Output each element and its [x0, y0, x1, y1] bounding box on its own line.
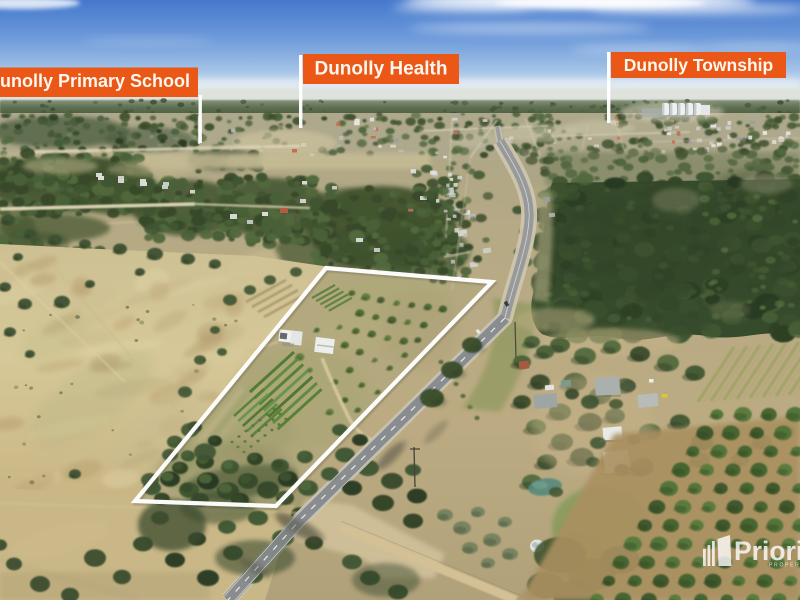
svg-text:PROPERTY: PROPERTY: [769, 563, 800, 569]
svg-text:Dunolly Health: Dunolly Health: [314, 59, 447, 80]
svg-text:Priority: Priority: [734, 536, 800, 566]
svg-text:Dunolly Primary School: Dunolly Primary School: [0, 71, 190, 91]
svg-text:Dunolly Township: Dunolly Township: [624, 55, 773, 75]
